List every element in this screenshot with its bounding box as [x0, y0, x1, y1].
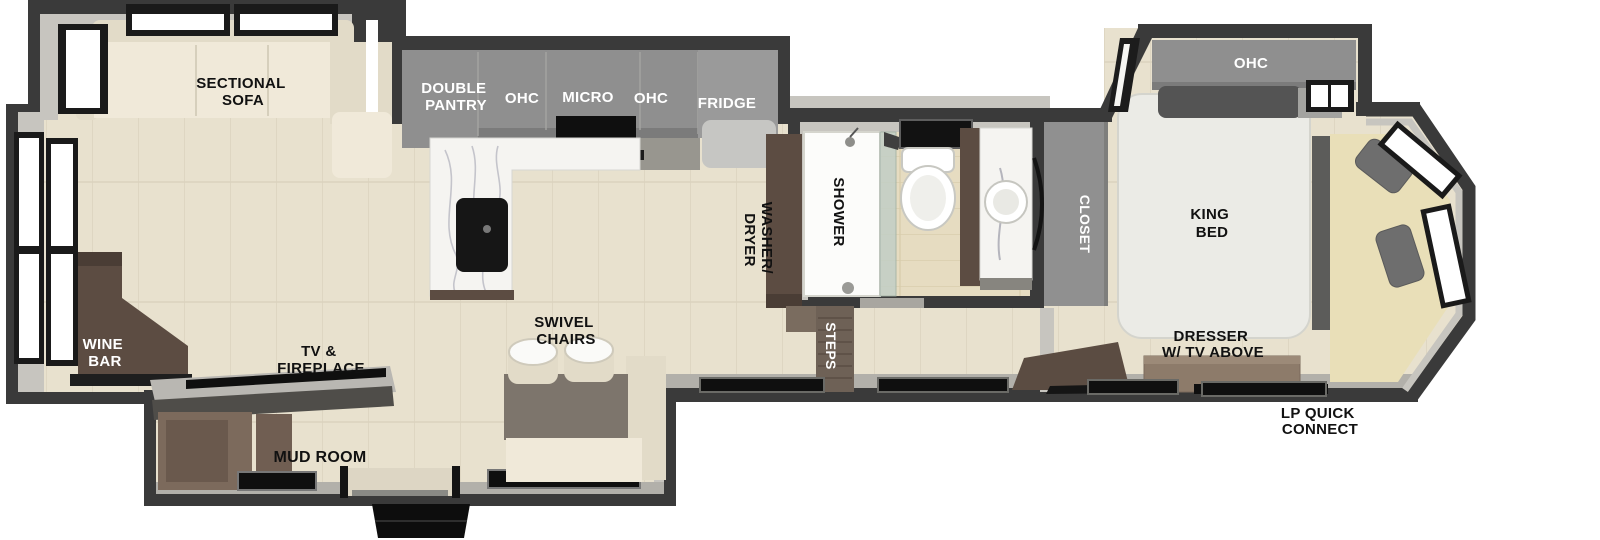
ohc-left-label: OHC	[505, 90, 539, 107]
shower-label: SHOWER	[830, 177, 847, 246]
shower-head	[845, 137, 855, 147]
bedroom-window-pane	[1331, 85, 1348, 107]
bedroom-ohc-label: OHC	[1234, 55, 1268, 72]
closet-label: CLOSET	[1077, 195, 1093, 254]
steps-label: STEPS	[823, 322, 839, 369]
mud-room-label: MUD ROOM	[273, 449, 366, 466]
divider-window-slit	[366, 20, 378, 112]
swivel-chairs-label: SWIVEL CHAIRS	[534, 314, 598, 348]
fridge-label: FRIDGE	[698, 95, 756, 112]
rear-window-pane	[19, 138, 39, 246]
shower-glass	[880, 132, 896, 296]
dresser-line1: DRESSER	[1173, 328, 1248, 345]
wine-bar-top	[78, 252, 122, 266]
door-side-window-3	[1088, 380, 1178, 394]
vanity-base	[980, 278, 1032, 290]
double-pantry-line1: DOUBLE	[421, 80, 486, 97]
living-slide-left-wall	[28, 0, 40, 112]
bed-pillows	[1158, 86, 1302, 118]
living-slide-window-pane	[132, 14, 224, 30]
tv-fireplace-line1: TV &	[301, 343, 336, 360]
double-pantry-line2: PANTRY	[425, 97, 487, 114]
washer-dryer-line2: DRYER	[741, 213, 758, 266]
sofa-chaise	[332, 112, 392, 178]
wine-bar-label: WINE BAR	[83, 336, 128, 370]
entry-threshold	[352, 490, 448, 496]
shower-drain	[842, 282, 854, 294]
lp-line2: CONNECT	[1282, 421, 1358, 438]
dresser-line2: W/ TV ABOVE	[1162, 344, 1264, 361]
lp-quick-connect-label: LP QUICK CONNECT	[1281, 405, 1359, 438]
door-side-window-2	[878, 378, 1008, 392]
entry-door-jamb-left	[340, 466, 348, 498]
double-pantry-label: DOUBLE PANTRY	[421, 80, 491, 114]
rear-window-pane	[51, 254, 73, 360]
bedroom-window-pane	[1311, 85, 1328, 107]
entry-door-jamb-right	[452, 466, 460, 498]
sofa-corner-section	[330, 42, 392, 124]
closet-edge	[1104, 122, 1108, 306]
king-bed-line1: KING	[1190, 206, 1229, 223]
swivel-chairs-line2: CHAIRS	[536, 331, 595, 348]
ohc-right-label: OHC	[634, 90, 668, 107]
micro-label: MICRO	[562, 89, 614, 106]
kitchen-slide-top-wall	[396, 36, 790, 50]
fridge-front	[702, 120, 776, 168]
rv-floorplan: SECTIONAL SOFA DOUBLE PANTRY OHC MICRO O…	[0, 0, 1600, 540]
bedroom-slide-right-wall	[1358, 28, 1372, 114]
king-bed-label: KING BED	[1190, 206, 1233, 241]
mudroom-window	[238, 472, 316, 490]
living-slide-window-pane	[240, 14, 332, 30]
mudroom-cabinet-inset	[166, 420, 228, 482]
wine-bar-line1: WINE	[83, 336, 123, 353]
king-bed-line2: BED	[1196, 224, 1229, 241]
rear-window-pane	[19, 254, 39, 358]
counter-end-panel	[430, 290, 514, 300]
bedroom-slide-top-wall	[1138, 24, 1372, 38]
kitchen-sink	[456, 198, 508, 272]
swivel-bench-base	[506, 438, 642, 482]
sectional-sofa-line1: SECTIONAL	[196, 75, 285, 92]
vessel-sink-bowl	[993, 189, 1019, 215]
bottom-left-wall	[6, 392, 154, 404]
lp-line1: LP QUICK	[1281, 405, 1355, 422]
living-slide-side-pane	[66, 30, 100, 108]
vanity-partition	[960, 128, 980, 286]
toilet	[901, 148, 955, 230]
washer-dryer-front	[766, 294, 802, 308]
swivel-chairs-line1: SWIVEL	[534, 314, 593, 331]
tv-fireplace-line2: FIREPLACE	[277, 360, 365, 377]
bathroom-door-opening	[860, 298, 924, 308]
dresser-label: DRESSER W/ TV ABOVE	[1162, 328, 1264, 361]
door-side-window-4	[1202, 382, 1326, 396]
bedside-ledge	[1312, 136, 1330, 330]
sink-faucet	[483, 225, 491, 233]
sectional-sofa-line2: SOFA	[222, 92, 264, 109]
wine-bar-line2: BAR	[88, 353, 121, 370]
door-side-window-1	[700, 378, 824, 392]
closet	[1044, 122, 1108, 306]
floorplan-canvas: SECTIONAL SOFA DOUBLE PANTRY OHC MICRO O…	[0, 0, 1600, 540]
rear-window-pane	[51, 144, 73, 246]
washer-dryer-line1: WASHER/	[758, 202, 775, 275]
